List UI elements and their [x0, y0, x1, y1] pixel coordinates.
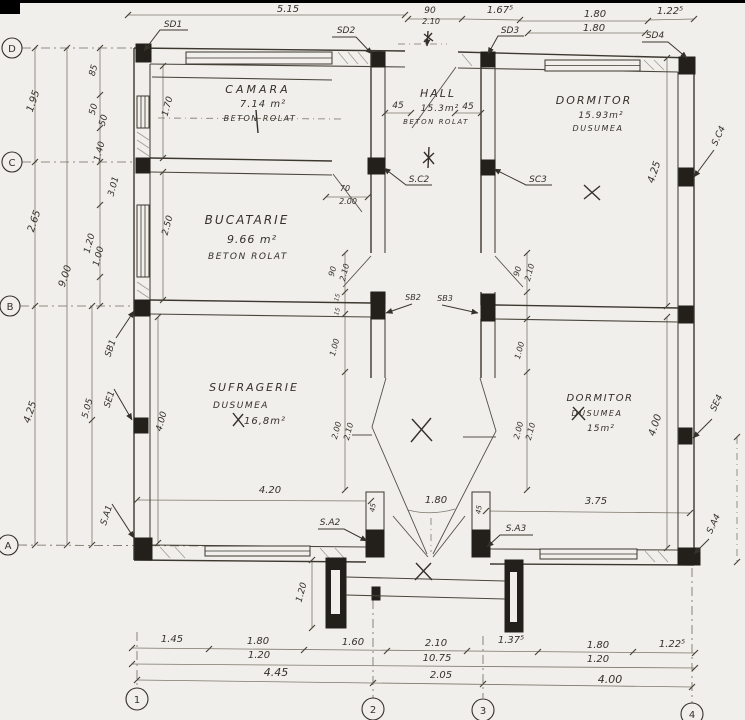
dim-label: 45 — [462, 102, 474, 112]
grid-row-label: C — [9, 158, 16, 169]
dim-label: 4.20 — [259, 485, 281, 496]
room-area: 15m² — [587, 424, 615, 434]
dim-label: 1.95 — [25, 89, 42, 114]
dim-label: 9.00 — [57, 264, 74, 289]
grid-col-label: 1 — [134, 695, 140, 706]
dim-label: 1.80 — [587, 640, 609, 651]
dim-label: 1.20 — [248, 650, 270, 661]
dim-label: 1.00 — [328, 338, 341, 358]
dim-label: 1.20 — [295, 581, 310, 603]
dim-label: 1.60 — [342, 637, 364, 648]
dim-label: 45 — [392, 101, 404, 111]
dim-tick — [384, 648, 390, 654]
room-name: DORMITOR — [556, 94, 633, 107]
dim-label: 5.15 — [277, 4, 299, 15]
dim-label: 4.00 — [155, 410, 170, 432]
room-name: HALL — [420, 87, 456, 100]
dim-label: 1.67⁵ — [487, 5, 513, 16]
dim-label: 2.10 — [422, 17, 440, 26]
grid-col-label: 3 — [480, 706, 486, 717]
dim-label: 50 — [98, 113, 111, 127]
dim-label: 1.22⁵ — [657, 6, 683, 17]
dim-label: 2.10 — [342, 422, 355, 442]
dim-label: 90 — [512, 265, 523, 277]
dim-label: 1.40 — [93, 140, 108, 162]
dim-label: 2.00 — [339, 197, 357, 206]
dim-label: 3.75 — [585, 496, 607, 507]
room-name: DORMITOR — [566, 393, 633, 404]
dim-label: 1.22⁵ — [659, 639, 685, 650]
grid-row-label: D — [8, 44, 16, 55]
dim-label: 2.05 — [430, 670, 452, 681]
dim-label: 5.05 — [81, 397, 96, 419]
column-label: SB3 — [437, 294, 453, 303]
column-label-leaders — [112, 30, 714, 554]
dim-label: 4.45 — [264, 666, 289, 679]
grid-row-label: B — [7, 302, 14, 313]
room-labels: CAMARA 7.14 m² BETON ROLAT HALL 15.3m² B… — [205, 83, 634, 434]
dim-label: 4.25 — [646, 160, 663, 185]
column-label: S.A3 — [506, 524, 527, 534]
column-label: S.A4 — [705, 513, 723, 536]
room-floor: BETON ROLAT — [224, 114, 297, 123]
grid-col-label: 4 — [689, 710, 695, 720]
grid-axis-lines — [18, 48, 692, 703]
dim-label: 2.65 — [26, 209, 43, 234]
dim-tick — [734, 559, 740, 565]
column-label: SD4 — [646, 31, 665, 41]
column-label: S.C4 — [710, 124, 728, 147]
dim-label: 1.80 — [425, 495, 447, 506]
column-label: SE4 — [709, 393, 725, 413]
dim-label: 4.25 — [22, 400, 39, 425]
dim-label: 85 — [88, 63, 101, 77]
dim-label: 90 — [327, 265, 338, 277]
room-name: BUCATARIE — [205, 213, 290, 227]
room-floor: DUSUMEA — [572, 409, 623, 418]
dim-label: 15 — [333, 293, 342, 302]
room-area: 15.3m² — [421, 104, 459, 114]
dim-label: 4.00 — [647, 413, 664, 438]
dim-label: 1.80 — [584, 9, 606, 20]
room-floor: BETON ROLAT — [403, 118, 469, 126]
dim-label: 2.10 — [338, 263, 351, 283]
room-floor: DUSUMEA — [573, 124, 624, 133]
column-label: SC3 — [529, 175, 547, 185]
column-label: SD2 — [337, 26, 356, 36]
dim-label: 2.00 — [512, 421, 525, 441]
dim-label: 1.80 — [583, 23, 605, 34]
dim-label: 90 — [424, 6, 436, 16]
dim-label: 1.00 — [513, 341, 526, 361]
dim-label: 50 — [88, 102, 101, 116]
dim-label: 2.10 — [523, 263, 536, 283]
column-label: SE1 — [103, 390, 118, 409]
room-area: 7.14 m² — [240, 99, 286, 110]
dim-label: 1.45 — [161, 634, 183, 645]
dim-tick — [301, 647, 307, 653]
column-label: SB2 — [405, 293, 421, 302]
grid-bubbles: D C B A 1 2 3 4 — [0, 38, 703, 720]
dim-tick — [630, 649, 636, 655]
column-label: SD3 — [501, 26, 520, 36]
grid-row-label: A — [5, 541, 12, 552]
room-area: 16,8m² — [244, 416, 286, 427]
dim-label: 1.20 — [587, 654, 609, 665]
dim-label: 4.00 — [598, 673, 623, 686]
floor-plan-drawing: D C B A 1 2 3 4 CAMARA 7.14 m² BETON ROL… — [0, 0, 745, 720]
dim-label: 2.00 — [330, 421, 343, 441]
dim-label: 3.01 — [107, 176, 122, 198]
dim-label: 1.37⁵ — [498, 635, 524, 646]
dim-label: 70 — [340, 184, 350, 193]
grid-col-label: 2 — [370, 705, 376, 716]
dim-label: 2.10 — [524, 422, 537, 442]
column-label: S.A2 — [320, 518, 341, 528]
column-label: S.C2 — [409, 175, 430, 185]
room-name: SUFRAGERIE — [209, 381, 299, 394]
column-label: S.A1 — [99, 504, 115, 527]
dim-label: 15 — [333, 307, 342, 316]
room-area: 9.66 m² — [227, 233, 277, 246]
dim-label: 10.75 — [423, 653, 452, 664]
column-label: SB1 — [104, 338, 119, 358]
dim-label: 1.00 — [92, 245, 107, 267]
column-label: SD1 — [164, 20, 182, 30]
dim-label: 2.10 — [425, 638, 447, 649]
room-floor: BETON ROLAT — [208, 252, 288, 262]
scan-artifacts — [0, 0, 745, 14]
room-area: 15.93m² — [578, 111, 623, 121]
floor-plan-sheet: D C B A 1 2 3 4 CAMARA 7.14 m² BETON ROL… — [0, 0, 745, 720]
room-name: CAMARA — [225, 83, 290, 96]
room-floor: DUSUMEA — [213, 401, 269, 411]
dim-label: 1.80 — [247, 636, 269, 647]
